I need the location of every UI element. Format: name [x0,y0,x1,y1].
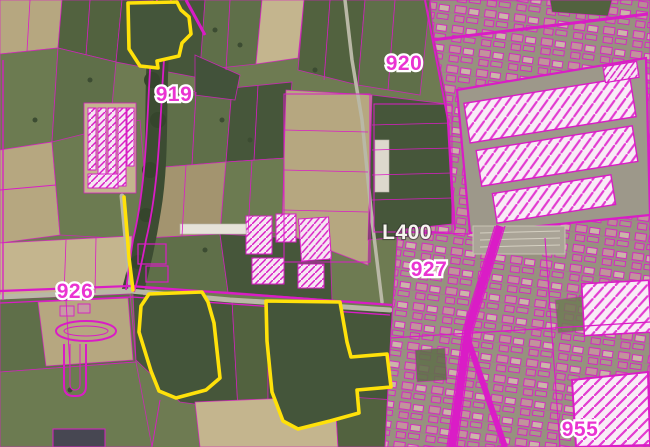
parcel-label-920: 920 [386,52,423,75]
greenhouse-group [84,103,136,193]
white-building [375,140,389,192]
map-viewport[interactable]: 919 920 926 927 955 L400 [0,0,650,447]
parcel-label-919: 919 [156,83,193,106]
road-label-l400: L400 [382,221,432,244]
aerial-map: 919 920 926 927 955 L400 [0,0,650,447]
dark-structure [53,429,105,447]
parcel-label-955: 955 [562,418,599,441]
hatched-block [582,280,650,335]
parcel-label-926: 926 [57,280,94,303]
parcel-label-927: 927 [411,258,448,281]
white-building [180,224,246,234]
